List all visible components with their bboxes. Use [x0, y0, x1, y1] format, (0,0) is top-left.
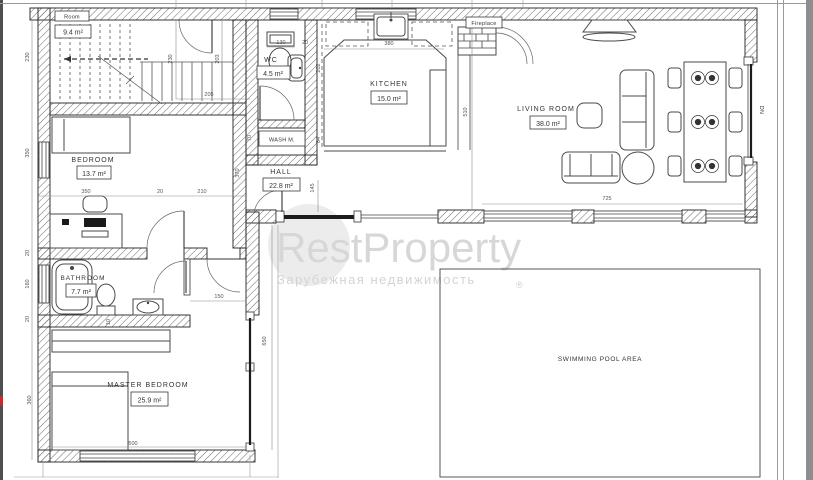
coffee-table-icon: [577, 103, 602, 128]
ceiling-lamp-icon: [583, 20, 636, 41]
dimension-label: 20: [25, 250, 31, 256]
dimension-label: 350: [25, 148, 31, 157]
ottoman-icon: [622, 152, 654, 184]
desk-chair-icon: [83, 196, 107, 212]
stair-room-door: [179, 20, 212, 53]
wc-door: [260, 86, 294, 120]
fireplace-icon: [458, 27, 533, 64]
dimension-label: 70: [247, 135, 253, 141]
bed-icon: [52, 117, 130, 153]
room-labels: Room 9.4 m² BEDROOM 13.7 m² WC 4.5 m² WA…: [55, 11, 764, 406]
kitchen-sink-icon: [374, 12, 408, 39]
hall-terrace-door: [254, 190, 282, 212]
dimension-label: 510: [463, 107, 469, 116]
area-label-hall: 22.8 m²: [269, 183, 293, 190]
room-label-stair: Room: [64, 15, 80, 21]
dimension-label: 210: [197, 189, 206, 195]
floor-plan: RestProperty Зарубежная недвижимость ®: [0, 0, 813, 480]
room-label-bedroom: BEDROOM: [71, 157, 114, 164]
bathroom-window: [39, 265, 49, 303]
dimension-label: 202: [316, 63, 322, 72]
room-label-kitchen: KITCHEN: [370, 81, 408, 88]
dimension-label: 20: [25, 316, 31, 322]
dimension-label: 370: [235, 168, 241, 177]
down-label: DN: [758, 106, 764, 115]
dimension-label: 145: [310, 183, 316, 192]
area-label-kitchen: 15.0 m²: [377, 96, 401, 103]
page-edge-top: [0, 3, 806, 4]
room-label-hall: HALL: [270, 169, 292, 176]
bedroom-window: [39, 142, 49, 178]
dimension-label: 10: [106, 319, 112, 325]
dimension-label: 160: [25, 279, 31, 288]
dimension-label: 130: [276, 40, 285, 46]
dimension-label: 150: [214, 294, 223, 300]
desk-icon: [50, 214, 122, 248]
area-label-stair: 9.4 m²: [63, 30, 84, 37]
dimension-label: 725: [602, 196, 611, 202]
area-label-master: 25.9 m²: [138, 398, 162, 405]
page-edge-left: [0, 0, 3, 480]
dimension-label: 380: [384, 41, 393, 47]
area-label-living: 38.0 m²: [536, 121, 560, 128]
dimension-label: 84: [316, 137, 322, 143]
dimension-label: 360: [27, 395, 33, 404]
dimension-label: 350: [81, 189, 90, 195]
dining-table-icon: [668, 62, 742, 182]
terrace-glass-doors: [276, 211, 438, 222]
stairs-up-arrow: [64, 56, 71, 62]
wc-window: [270, 9, 298, 19]
area-label-bedroom: 13.7 m²: [82, 171, 106, 178]
page-edge-right: [806, 0, 813, 480]
fireplace-label: Fireplace: [471, 21, 496, 27]
dimension-label: 650: [262, 336, 268, 345]
room-label-living: LIVING ROOM: [517, 106, 575, 113]
plot-boundary-line: [777, 0, 778, 480]
master-bedroom-window: [80, 451, 195, 461]
place-setting-icons: [692, 72, 719, 173]
red-marker: [0, 396, 3, 406]
master-glass-wall: [246, 312, 254, 451]
sofa-small-icon: [562, 152, 620, 183]
bathroom-toilet-icon: [97, 284, 115, 315]
dimension-label: 20: [302, 40, 308, 46]
swimming-pool: SWIMMING POOL AREA: [440, 269, 760, 477]
room-label-bathroom: BATHROOM: [60, 275, 105, 282]
sofa-large-icon: [620, 70, 654, 150]
plot-boundary-line: [783, 0, 784, 480]
dimension-label: 230: [168, 54, 174, 63]
room-label-wash: WASH M.: [269, 138, 295, 144]
living-room-windows: [484, 211, 745, 221]
room-label-master: MASTER BEDROOM: [107, 382, 188, 389]
area-label-bathroom: 7.7 m²: [71, 289, 92, 296]
dimension-label: 205: [204, 92, 213, 98]
living-glass-door: [744, 57, 753, 165]
wardrobe-icon: [52, 330, 170, 352]
floor-plan-drawing: SWIMMING POOL AREA: [0, 0, 813, 480]
bedroom-door: [147, 211, 184, 248]
dimension-lines: [14, 0, 743, 478]
room-label-wc: WC: [264, 57, 278, 64]
bathroom-door: [154, 261, 186, 293]
bathroom-sink-icon: [133, 299, 163, 315]
dimension-label: 20: [157, 189, 163, 195]
vestibule-door: [207, 259, 240, 292]
dimension-label: 203: [215, 54, 221, 63]
pool-label: SWIMMING POOL AREA: [558, 356, 642, 363]
dimension-label: 500: [128, 441, 137, 447]
area-label-wc: 4.5 m²: [263, 71, 284, 78]
dimension-label: 230: [25, 52, 31, 61]
